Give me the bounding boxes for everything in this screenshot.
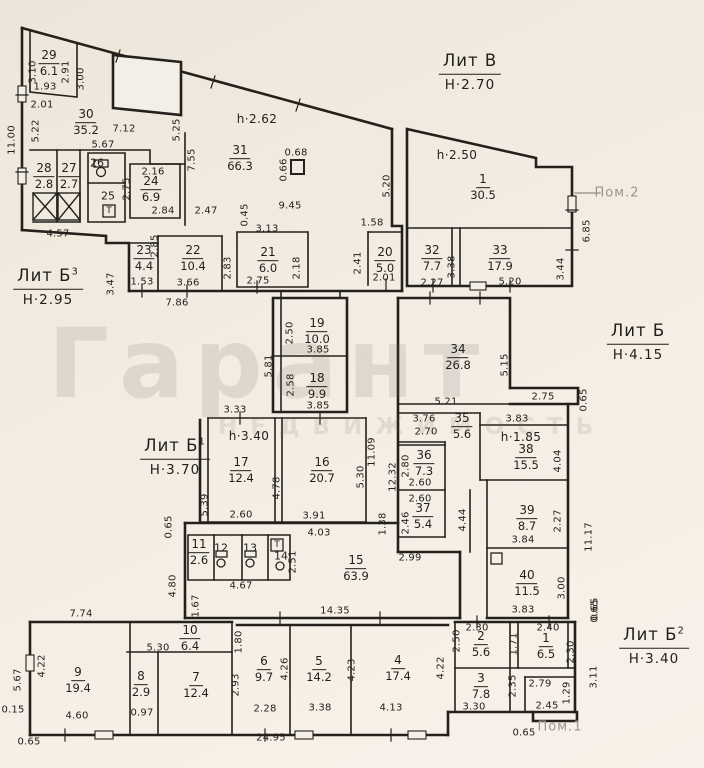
dimension-label: 2.75 <box>246 276 269 287</box>
dimension-label: 2.58 <box>286 373 297 396</box>
dimension-label: 3.30 <box>462 702 485 713</box>
room-label-3: 37.8 <box>472 672 490 700</box>
room-number: 15 <box>345 554 366 569</box>
dimension-label: 3.47 <box>106 272 117 295</box>
dimension-label: 2.27 <box>420 278 443 289</box>
dimension-label: 0.65 <box>590 599 601 622</box>
building-liter: Лит Б1 <box>140 436 210 460</box>
building-liter: Лит В <box>439 51 501 75</box>
room-area: 12.4 <box>183 686 209 699</box>
dimension-label: 4.03 <box>307 528 330 539</box>
room-number: 29 <box>38 49 59 64</box>
room-area: 35.2 <box>73 123 99 136</box>
dimension-label: 14.35 <box>320 606 350 617</box>
dimension-label: 2.01 <box>372 273 395 284</box>
dimension-label: 1.71 <box>509 632 520 655</box>
dimension-label: 2.50 <box>285 321 296 344</box>
room-label-40: 4011.5 <box>514 569 540 597</box>
dimension-label: 5.30 <box>356 465 367 488</box>
dimension-label: 4.04 <box>553 449 564 472</box>
fixtures <box>94 160 502 570</box>
dimension-label: 2.30 <box>465 623 488 634</box>
dimension-label: 5.67 <box>91 140 114 151</box>
room-label-5: 514.2 <box>306 655 332 683</box>
dimension-label: 2.28 <box>253 704 276 715</box>
dimension-label: 2.40 <box>536 623 559 634</box>
dimension-label: 3.91 <box>302 511 325 522</box>
dimension-label: 1.38 <box>378 512 389 535</box>
building-liter: Лит Б3 <box>13 266 83 290</box>
dimension-label: 3.38 <box>447 255 458 278</box>
room-number: 26 <box>90 158 104 170</box>
room-label-11: 112.6 <box>188 538 209 566</box>
dimension-label: 3.00 <box>557 576 568 599</box>
dimension-label: 3.85 <box>306 345 329 356</box>
dimension-label: 1.58 <box>360 218 383 229</box>
dimension-label: 5.20 <box>382 174 393 197</box>
room-label-1: 16.5 <box>537 632 555 660</box>
room-area: 6.0 <box>257 261 278 274</box>
room-area: 19.4 <box>65 681 91 694</box>
dimension-label: 3.00 <box>76 67 87 90</box>
dimension-label: 5.21 <box>434 397 457 408</box>
dimension-label: 0.45 <box>240 203 251 226</box>
dimension-label: 2.80 <box>401 454 412 477</box>
dimension-label: 2.51 <box>288 550 299 573</box>
room-label-32: 327.7 <box>421 244 442 272</box>
ceiling-height-label: h·1.85 <box>501 430 542 444</box>
room-number: 31 <box>229 144 250 159</box>
room-label-14: 14 <box>274 550 288 563</box>
dimension-label: 2.84 <box>151 206 174 217</box>
dimension-label: 2.60 <box>408 494 431 505</box>
room-label-17: 1712.4 <box>228 456 254 484</box>
room-area: 6.9 <box>140 190 161 203</box>
dimension-label: 4.23 <box>347 658 358 681</box>
dimension-label: 9.45 <box>278 201 301 212</box>
dimension-label: 3.66 <box>176 278 199 289</box>
room-number: 36 <box>413 449 434 464</box>
room-label-12: 12 <box>214 542 228 555</box>
column <box>291 160 304 174</box>
building-title-3: Лит БН·4.15 <box>607 321 669 364</box>
dimension-label: 5.22 <box>31 119 42 142</box>
dimension-label: 4.60 <box>65 711 88 722</box>
room-number: 33 <box>489 244 510 259</box>
room-number: 11 <box>188 538 209 553</box>
room-label-20: 205.0 <box>374 246 395 274</box>
dimension-label: 5.67 <box>13 668 24 691</box>
dimension-label: 2.91 <box>61 60 72 83</box>
dimension-label: 2.50 <box>452 629 463 652</box>
room-label-10: 106.4 <box>179 624 200 652</box>
room-area: 2.9 <box>132 685 150 698</box>
dimension-label: 2.83 <box>223 256 234 279</box>
room-area: 2.6 <box>188 553 209 566</box>
dimension-label: 4.22 <box>436 656 447 679</box>
room-number: 27 <box>58 162 79 177</box>
dimension-label: 5.25 <box>172 118 183 141</box>
room-label-13: 13 <box>243 542 257 555</box>
dimension-label: 3.76 <box>412 414 435 425</box>
room-label-31: 3166.3 <box>227 144 253 172</box>
building-height: Н·3.40 <box>619 648 689 667</box>
dimension-label: 4.67 <box>229 581 252 592</box>
room-area: 10.4 <box>180 259 206 272</box>
floor-plan-page: Гарант НЕДВИЖИМОСТЬ 296.13035.23166.3130… <box>0 0 704 768</box>
room-label-33: 3317.9 <box>487 244 513 272</box>
dimension-label: 11.09 <box>367 437 378 467</box>
dimension-label: 0.65 <box>17 737 40 748</box>
dimension-label: 2.18 <box>292 256 303 279</box>
room-number: 38 <box>515 443 536 458</box>
room-label-26: 26 <box>90 157 104 170</box>
room-area: 6.1 <box>38 64 59 77</box>
dimension-label: 3.83 <box>505 414 528 425</box>
room-label-6: 69.7 <box>255 655 273 683</box>
room-area: 11.5 <box>514 584 540 597</box>
dimension-label: 2.46 <box>401 511 412 534</box>
room-number: 25 <box>101 191 115 203</box>
dimension-label: 4.78 <box>272 476 283 499</box>
room-area: 12.4 <box>228 471 254 484</box>
dimension-label: 1.29 <box>562 681 573 704</box>
room-label-9: 919.4 <box>65 666 91 694</box>
room-area: 17.9 <box>487 259 513 272</box>
room-area: 63.9 <box>343 569 369 582</box>
room-label-22: 2210.4 <box>180 244 206 272</box>
dimension-label: 5.81 <box>264 354 275 377</box>
dimension-label: 4.44 <box>458 508 469 531</box>
room-number: 13 <box>243 543 257 555</box>
dimension-label: 4.13 <box>379 703 402 714</box>
room-number: 6 <box>257 655 271 670</box>
room-number: 1 <box>539 632 553 647</box>
room-number: 17 <box>230 456 251 471</box>
dimension-label: 11.17 <box>584 522 595 552</box>
dimension-label: 2.93 <box>231 673 242 696</box>
room-label-15: 1563.9 <box>343 554 369 582</box>
room-number: 21 <box>257 246 278 261</box>
room-label-16: 1620.7 <box>309 456 335 484</box>
room-area: 6.5 <box>537 647 555 660</box>
dimension-label: 4.22 <box>37 654 48 677</box>
building-height: Н·3.70 <box>140 459 210 478</box>
dimension-label: 0.65 <box>512 728 535 739</box>
dimension-label: 4.57 <box>46 229 69 240</box>
room-label-25: 25 <box>101 190 115 203</box>
room-number: 16 <box>311 456 332 471</box>
room-number: 39 <box>516 504 537 519</box>
outer-walls <box>22 28 578 735</box>
room-area: 14.2 <box>306 670 332 683</box>
dimension-label: 2.35 <box>508 674 519 697</box>
room-number: 9 <box>71 666 85 681</box>
boiler-t-icon: Т <box>106 206 112 216</box>
dimension-label: 7.74 <box>69 609 92 620</box>
room-label-30: 3035.2 <box>73 108 99 136</box>
room-number: 12 <box>214 543 228 555</box>
dimension-label: 3.83 <box>511 605 534 616</box>
room-number: 32 <box>421 244 442 259</box>
building-liter: Лит Б <box>607 321 669 345</box>
room-number: 19 <box>306 317 327 332</box>
room-label-39: 398.7 <box>516 504 537 532</box>
room-label-8: 82.9 <box>132 670 150 698</box>
room-number: 35 <box>451 412 472 427</box>
dimension-label: 1.67 <box>191 594 202 617</box>
building-liter: Лит Б2 <box>619 625 689 649</box>
room-label-19: 1910.0 <box>304 317 330 345</box>
room-number: 40 <box>516 569 537 584</box>
room-number: 14 <box>274 551 288 563</box>
room-number: 18 <box>306 372 327 387</box>
dimension-label: 2.27 <box>553 509 564 532</box>
room-label-24: 246.9 <box>140 175 161 203</box>
room-label-34: 3426.8 <box>445 343 471 371</box>
dimension-label: 24.95 <box>256 733 286 744</box>
room-number: 4 <box>391 654 405 669</box>
room-area: 2.7 <box>58 177 79 190</box>
room-area: 7.8 <box>472 687 490 700</box>
dimension-label: 2.45 <box>535 701 558 712</box>
building-title-4: Лит Б1Н·3.70 <box>140 436 210 479</box>
dimension-label: 3.44 <box>556 257 567 280</box>
dimension-label: 0.68 <box>284 148 307 159</box>
boiler-t-icon: Т <box>274 540 280 550</box>
room-label-2: 25.6 <box>472 630 490 658</box>
dimension-label: 7.12 <box>112 124 135 135</box>
dimension-label: 0.66 <box>279 158 290 181</box>
room-area: 17.4 <box>385 669 411 682</box>
dimension-label: 3.84 <box>511 535 534 546</box>
room-label-7: 712.4 <box>183 671 209 699</box>
room-area: 9.7 <box>255 670 273 683</box>
dimension-label: 3.38 <box>308 703 331 714</box>
building-title-1: Лит ВН·2.70 <box>439 51 501 94</box>
dimension-label: 5.20 <box>498 277 521 288</box>
room-area: 66.3 <box>227 159 253 172</box>
dimension-label: 2.70 <box>414 427 437 438</box>
dimension-label: 2.75 <box>531 392 554 403</box>
room-number: 8 <box>134 670 148 685</box>
room-label-21: 216.0 <box>257 246 278 274</box>
floor-plan-drawing <box>0 0 704 768</box>
dimension-label: 5.30 <box>146 643 169 654</box>
dimension-label: 3.10 <box>28 60 39 83</box>
room-number: 34 <box>447 343 468 358</box>
dimension-label: 0.65 <box>164 515 175 538</box>
building-height: Н·4.15 <box>607 344 669 363</box>
room-number: 28 <box>33 162 54 177</box>
dimension-label: 2.75 <box>122 177 133 200</box>
dimension-label: 7.55 <box>187 148 198 171</box>
room-area: 5.4 <box>412 517 433 530</box>
dimension-label: 3.13 <box>255 224 278 235</box>
inner-walls <box>30 30 575 735</box>
dimension-label: 3.11 <box>589 665 600 688</box>
ceiling-height-label: h·2.50 <box>437 148 478 162</box>
room-area: 2.8 <box>33 177 54 190</box>
dimension-label: 5.15 <box>500 353 511 376</box>
dimension-label: 4.26 <box>280 657 291 680</box>
dimension-label: 11.00 <box>7 125 18 155</box>
room-number: 7 <box>189 671 203 686</box>
room-area: 30.5 <box>470 188 496 201</box>
ceiling-height-label: h·3.40 <box>229 429 270 443</box>
premise-note: Пом.1 <box>538 720 583 735</box>
dimension-label: 2.79 <box>528 679 551 690</box>
dimension-label: 1.80 <box>234 630 245 653</box>
room-area: 4.4 <box>133 259 154 272</box>
dimension-label: 0.65 <box>579 388 590 411</box>
stair-void <box>113 55 181 115</box>
dimension-label: 2.30 <box>566 640 577 663</box>
dimension-label: 4.80 <box>168 574 179 597</box>
room-label-18: 189.9 <box>306 372 327 400</box>
room-label-1: 130.5 <box>470 173 496 201</box>
room-area: 7.3 <box>413 464 434 477</box>
room-area: 5.6 <box>451 427 472 440</box>
dimension-label: 2.41 <box>353 251 364 274</box>
room-area: 7.7 <box>421 259 442 272</box>
room-label-28: 282.8 <box>33 162 54 190</box>
room-number: 20 <box>374 246 395 261</box>
room-area: 5.6 <box>472 645 490 658</box>
room-area: 10.0 <box>304 332 330 345</box>
dimension-label: 3.85 <box>306 401 329 412</box>
room-label-38: 3815.5 <box>513 443 539 471</box>
room-number: 10 <box>179 624 200 639</box>
dimension-label: 0.15 <box>1 705 24 716</box>
room-area: 26.8 <box>445 358 471 371</box>
room-area: 15.5 <box>513 458 539 471</box>
dimension-label: 2.01 <box>30 100 53 111</box>
shaft-boxes <box>33 193 80 220</box>
room-area: 20.7 <box>309 471 335 484</box>
premise-note: Пом.2 <box>595 186 640 201</box>
building-title-5: Лит Б2Н·3.40 <box>619 625 689 668</box>
dimension-label: 2.85 <box>150 234 161 257</box>
dimension-label: 1.53 <box>130 277 153 288</box>
room-label-27: 272.7 <box>58 162 79 190</box>
dimension-label: 6.85 <box>582 219 593 242</box>
dimension-label: 2.60 <box>408 478 431 489</box>
building-height: Н·2.95 <box>13 289 83 308</box>
dimension-label: 0.97 <box>130 708 153 719</box>
room-number: 22 <box>182 244 203 259</box>
room-number: 5 <box>312 655 326 670</box>
room-label-4: 417.4 <box>385 654 411 682</box>
dimension-label: 5.39 <box>200 493 211 516</box>
room-area: 8.7 <box>516 519 537 532</box>
dimension-label: 2.16 <box>141 167 164 178</box>
room-number: 3 <box>474 672 488 687</box>
room-label-29: 296.1 <box>38 49 59 77</box>
room-label-37: 375.4 <box>412 502 433 530</box>
dimension-label: 2.60 <box>229 510 252 521</box>
dimension-label: 7.86 <box>165 298 188 309</box>
building-title-2: Лит Б3Н·2.95 <box>13 266 83 309</box>
room-number: 1 <box>476 173 490 188</box>
room-area: 9.9 <box>306 387 327 400</box>
dimension-label: 12.32 <box>388 462 399 492</box>
building-height: Н·2.70 <box>439 74 501 93</box>
ceiling-height-label: h·2.62 <box>237 112 278 126</box>
room-number: 30 <box>75 108 96 123</box>
dimension-label: 1.93 <box>33 82 56 93</box>
dimension-label: 2.47 <box>194 206 217 217</box>
room-area: 6.4 <box>179 639 200 652</box>
room-label-36: 367.3 <box>413 449 434 477</box>
dimension-label: 3.33 <box>223 405 246 416</box>
room-label-35: 355.6 <box>451 412 472 440</box>
dimension-label: 2.99 <box>398 553 421 564</box>
